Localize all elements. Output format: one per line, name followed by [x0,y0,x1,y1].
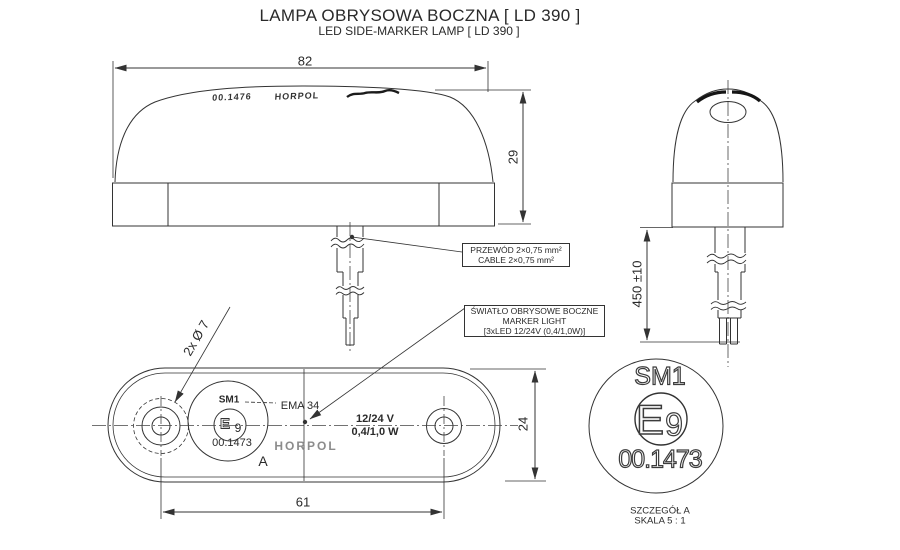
voltage-text: 12/24 V [356,413,394,425]
detail-e-mark-number: 9 [665,407,683,444]
power-text: 0,4/1,0 W [351,426,398,438]
dim-hole-spacing-61: 61 [296,495,310,510]
drawing-title-pl: LAMPA OBRYSOWA BOCZNA [ LD 390 ] [259,6,580,26]
cable-callout-box: PRZEWÓD 2×0,75 mm² CABLE 2×0,75 mm² [462,243,570,267]
detail-ref-label: A [258,453,267,469]
e-mark-letter-small: E [220,416,230,433]
marker-light-leader-line [310,308,465,419]
detail-e-mark-letter: E [636,396,664,444]
bottom-view [92,307,546,519]
approval-model-small: SM1 [219,395,240,406]
dim-body-width-24: 24 [516,417,531,431]
detail-code-text: 00.1473 [618,446,701,475]
front-view [640,80,783,367]
detail-model-text: SM1 [634,363,685,392]
e-mark-number-small: 9 [235,421,242,435]
marker-callout-line1: ŚWIATŁO OBRYSOWE BOCZNE [467,306,602,316]
sm1-ema-dashed-link [245,402,276,403]
ema-code-text: EMA 34 [281,400,320,412]
technical-drawing-canvas: LAMPA OBRYSOWA BOCZNA [ LD 390 ] LED SID… [0,0,900,550]
detail-caption-scale: SKALA 5 : 1 [634,516,685,527]
dim-cable-length-450: 450 ±10 [630,261,645,308]
drawing-linework [0,0,900,550]
marker-callout-line3: [3xLED 12/24V (0,4/1,0W)] [467,326,602,336]
dim-width-82: 82 [298,54,312,69]
mold-marking-squiggle [347,90,399,97]
lamp-base-outline [113,183,495,226]
cable-callout-line1: PRZEWÓD 2×0,75 mm² [465,245,567,255]
cable-leader-line [352,237,462,252]
dim-height-29: 29 [506,150,521,164]
marker-callout-line2: MARKER LIGHT [467,316,602,326]
cable-callout-line2: CABLE 2×0,75 mm² [465,255,567,265]
drawing-title-en: LED SIDE-MARKER LAMP [ LD 390 ] [318,24,519,38]
approval-code-small: 00.1473 [212,437,252,449]
lamp-base-outline [672,183,783,227]
brand-molded-text: HORPOL [274,439,337,453]
marker-light-callout-box: ŚWIATŁO OBRYSOWE BOCZNE MARKER LIGHT [3x… [464,305,605,337]
mold-code-text: 00.1476 [212,91,252,102]
mold-brand-text: HORPOL [274,90,319,102]
